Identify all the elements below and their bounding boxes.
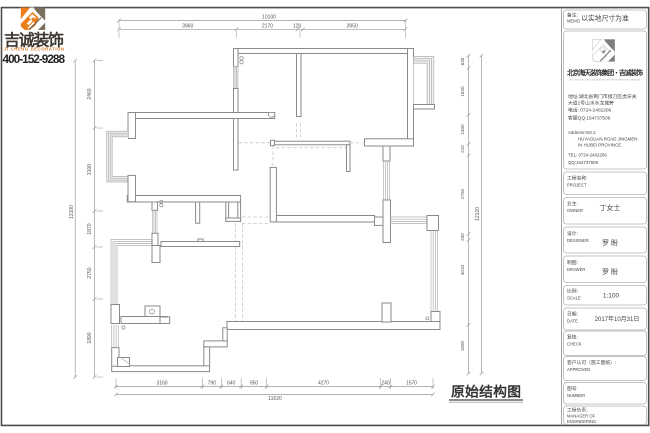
svg-text:北京海天装饰集团・吉诚装饰: 北京海天装饰集团・吉诚装饰 — [567, 68, 643, 77]
svg-text:3160: 3160 — [156, 381, 167, 387]
svg-text:3960: 3960 — [182, 23, 193, 29]
svg-text:10100: 10100 — [262, 14, 276, 20]
svg-text:设计:: 设计: — [567, 230, 578, 237]
svg-text:2017年10月31日: 2017年10月31日 — [595, 315, 640, 323]
svg-text:4270: 4270 — [318, 381, 329, 387]
svg-text:客服QQ:154737506: 客服QQ:154737506 — [568, 115, 611, 122]
svg-text:大道2号山水水龙城旁: 大道2号山水水龙城旁 — [568, 100, 614, 107]
svg-text:12100: 12100 — [69, 205, 75, 219]
svg-text:200: 200 — [460, 233, 465, 241]
svg-text:2750: 2750 — [460, 188, 465, 199]
svg-text:790: 790 — [208, 381, 217, 387]
svg-text:1890: 1890 — [87, 332, 93, 343]
svg-text:PROJECT: PROJECT — [567, 183, 587, 188]
svg-text:SCALE: SCALE — [567, 296, 581, 301]
svg-text:NUMBER: NUMBER — [567, 393, 585, 398]
svg-text:原始结构图: 原始结构图 — [451, 384, 521, 400]
svg-text:复核:: 复核: — [567, 334, 578, 341]
svg-text:950: 950 — [250, 381, 259, 387]
svg-text:11620: 11620 — [268, 396, 282, 402]
svg-text:DRAWER: DRAWER — [567, 267, 585, 272]
svg-text:HUYAGUAN ROAD JINGMEN: HUYAGUAN ROAD JINGMEN — [578, 137, 637, 142]
svg-text:240: 240 — [381, 381, 390, 387]
svg-text:以实地尺寸为准: 以实地尺寸为准 — [581, 14, 629, 23]
svg-text:120: 120 — [293, 23, 302, 29]
svg-text:2170: 2170 — [262, 23, 273, 29]
svg-text:1570: 1570 — [406, 381, 417, 387]
svg-text:罗 盼: 罗 盼 — [602, 239, 618, 247]
svg-text:丁女士: 丁女士 — [600, 203, 621, 212]
svg-text:TEL: 0724-2402206: TEL: 0724-2402206 — [568, 153, 607, 158]
svg-text:DATE: DATE — [567, 319, 578, 324]
svg-text:Address:NO.2: Address:NO.2 — [568, 130, 596, 135]
svg-text:640: 640 — [227, 381, 236, 387]
svg-text:IN HUBEI PROVINCE: IN HUBEI PROVINCE — [578, 143, 621, 148]
svg-text:630: 630 — [460, 57, 465, 65]
svg-text:2460: 2460 — [87, 88, 93, 99]
svg-text:OWNER: OWNER — [567, 208, 583, 213]
svg-text:1690: 1690 — [460, 340, 465, 351]
svg-text:1600: 1600 — [460, 86, 465, 97]
svg-text:MANAGER OF: MANAGER OF — [567, 414, 596, 419]
svg-text:CHECK: CHECK — [567, 342, 582, 347]
svg-text:图号:: 图号: — [567, 386, 578, 392]
svg-text:210: 210 — [460, 145, 465, 153]
svg-text:客户认可（施工图纸）:: 客户认可（施工图纸）: — [567, 359, 616, 366]
svg-text:电话: 0724-2402206: 电话: 0724-2402206 — [568, 107, 612, 114]
svg-text:制图:: 制图: — [567, 259, 578, 266]
svg-text:罗 盼: 罗 盼 — [602, 268, 618, 276]
svg-text:3100: 3100 — [87, 164, 93, 175]
svg-text:备注:: 备注: — [567, 12, 578, 19]
svg-text:ENGINEERING: ENGINEERING — [567, 419, 596, 424]
svg-text:比例:: 比例: — [567, 288, 578, 295]
svg-text:BEI JING HAI TIAN DECORATION G: BEI JING HAI TIAN DECORATION GROUP JICHE… — [570, 79, 640, 82]
svg-text:400-152-9288: 400-152-9288 — [3, 52, 66, 66]
svg-text:日期:: 日期: — [567, 312, 578, 318]
svg-text:1300: 1300 — [460, 124, 465, 135]
svg-text:12120: 12120 — [475, 207, 481, 221]
svg-text:2750: 2750 — [87, 267, 93, 278]
svg-text:3010: 3010 — [460, 264, 465, 275]
svg-text:业主:: 业主: — [567, 200, 578, 207]
svg-text:JI CHENG DECORATION: JI CHENG DECORATION — [4, 47, 64, 52]
svg-text:APPROVED: APPROVED — [567, 367, 590, 372]
svg-text:地址:湖北省荆门市掇刀区虎牙关: 地址:湖北省荆门市掇刀区虎牙关 — [568, 93, 637, 100]
svg-text:1870: 1870 — [87, 223, 93, 234]
svg-text:工程名称:: 工程名称: — [567, 175, 588, 182]
svg-text:DESIGNER: DESIGNER — [567, 238, 589, 243]
svg-text:工程负责:: 工程负责: — [567, 407, 588, 414]
svg-text:MEMO: MEMO — [567, 19, 581, 24]
svg-text:1:100: 1:100 — [603, 293, 620, 300]
svg-text:QQ:154737506: QQ:154737506 — [568, 160, 599, 165]
svg-text:3950: 3950 — [347, 23, 358, 29]
